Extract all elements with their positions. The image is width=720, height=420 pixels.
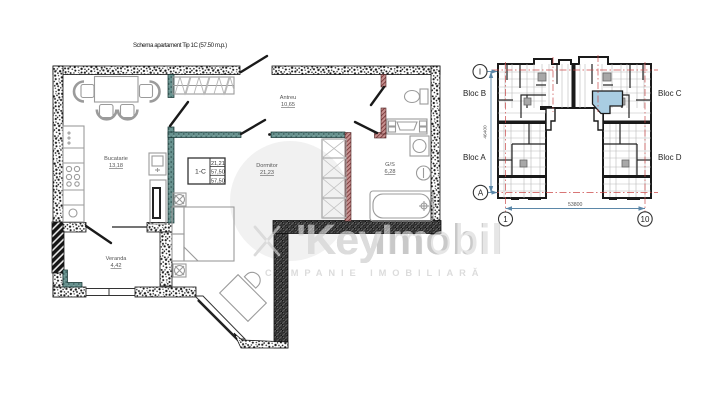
- svg-text:Dormitor: Dormitor: [256, 163, 278, 169]
- svg-text:Bloc A: Bloc A: [463, 153, 486, 162]
- svg-text:G/S: G/S: [385, 162, 395, 168]
- svg-text:13,18: 13,18: [109, 163, 123, 169]
- svg-text:'KeyImobil: 'KeyImobil: [296, 216, 502, 264]
- svg-text:53800: 53800: [568, 202, 583, 208]
- svg-text:10,65: 10,65: [281, 102, 295, 108]
- svg-text:Schema apartament Tip 1C (57.5: Schema apartament Tip 1C (57.50 m.p.): [133, 42, 227, 49]
- svg-text:Antreu: Antreu: [280, 95, 296, 101]
- svg-text:1: 1: [503, 215, 508, 224]
- svg-text:6,28: 6,28: [385, 169, 396, 175]
- svg-text:46400: 46400: [483, 125, 489, 139]
- svg-text:21,21: 21,21: [211, 161, 225, 167]
- svg-text:1-C: 1-C: [195, 169, 206, 176]
- svg-text:10: 10: [641, 215, 650, 224]
- svg-text:Bloc B: Bloc B: [463, 89, 486, 98]
- svg-text:4,42: 4,42: [111, 263, 122, 269]
- svg-text:21,23: 21,23: [260, 170, 274, 176]
- svg-text:Veranda: Veranda: [106, 256, 128, 262]
- svg-text:Bloc D: Bloc D: [658, 153, 682, 162]
- svg-text:57,50: 57,50: [211, 170, 225, 176]
- svg-text:COMPANIE IMOBILIARĂ: COMPANIE IMOBILIARĂ: [265, 268, 484, 278]
- svg-text:A: A: [478, 189, 484, 198]
- svg-text:57,50: 57,50: [211, 178, 225, 184]
- svg-text:I: I: [479, 68, 481, 77]
- svg-text:Bloc C: Bloc C: [658, 89, 682, 98]
- svg-text:Bucatarie: Bucatarie: [104, 156, 128, 162]
